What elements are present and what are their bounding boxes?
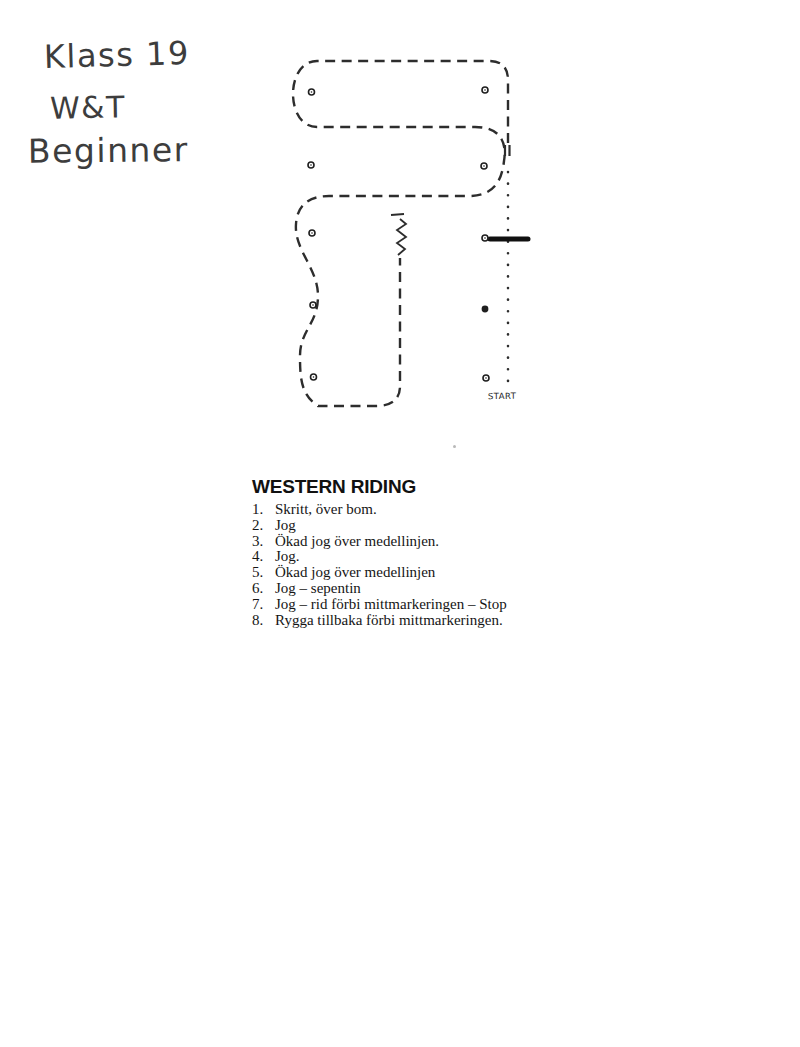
instruction-number: 4. bbox=[252, 549, 275, 565]
instruction-text: Skritt, över bom. bbox=[275, 502, 552, 518]
start-label: START bbox=[488, 391, 517, 401]
back-up-marker-icon bbox=[391, 214, 406, 255]
riding-pattern-diagram: START bbox=[270, 38, 550, 424]
scan-speck bbox=[453, 445, 456, 448]
instruction-item: 1. Skritt, över bom. bbox=[252, 502, 552, 518]
instructions-block: WESTERN RIDING 1. Skritt, över bom. 2. J… bbox=[252, 476, 552, 628]
instruction-item: 8. Rygga tillbaka förbi mittmarkeringen. bbox=[252, 613, 552, 629]
instruction-item: 6. Jog – sepentin bbox=[252, 581, 552, 597]
instruction-number: 5. bbox=[252, 565, 275, 581]
instruction-number: 6. bbox=[252, 581, 275, 597]
cone-markers-left bbox=[308, 89, 317, 380]
instruction-text: Jog – sepentin bbox=[275, 581, 552, 597]
page-title: WESTERN RIDING bbox=[252, 476, 552, 498]
instruction-item: 2. Jog bbox=[252, 518, 552, 534]
instruction-item: 3. Ökad jog över medellinjen. bbox=[252, 534, 552, 550]
instruction-text: Jog – rid förbi mittmarkeringen – Stop bbox=[275, 597, 552, 613]
instruction-text: Ökad jog över medellinjen. bbox=[275, 534, 552, 550]
instruction-number: 2. bbox=[252, 518, 275, 534]
instruction-item: 5. Ökad jog över medellinjen bbox=[252, 565, 552, 581]
handwritten-class-level: Beginner bbox=[28, 130, 189, 171]
transition-ticks-icon bbox=[505, 145, 510, 156]
scanned-page: Klass 19 W&T Beginner bbox=[0, 0, 800, 1047]
instruction-text: Jog. bbox=[275, 549, 552, 565]
instruction-number: 1. bbox=[252, 502, 275, 518]
instruction-number: 7. bbox=[252, 597, 275, 613]
instruction-text: Jog bbox=[275, 518, 552, 534]
instruction-number: 3. bbox=[252, 534, 275, 550]
instruction-text: Ökad jog över medellinjen bbox=[275, 565, 552, 581]
instruction-item: 7. Jog – rid förbi mittmarkeringen – Sto… bbox=[252, 597, 552, 613]
instruction-number: 8. bbox=[252, 613, 275, 629]
handwritten-class-type: W&T bbox=[50, 89, 126, 125]
cone-markers-right bbox=[481, 87, 489, 381]
instruction-text: Rygga tillbaka förbi mittmarkeringen. bbox=[275, 613, 552, 629]
handwritten-class-number: Klass 19 bbox=[43, 34, 190, 76]
instruction-item: 4. Jog. bbox=[252, 549, 552, 565]
